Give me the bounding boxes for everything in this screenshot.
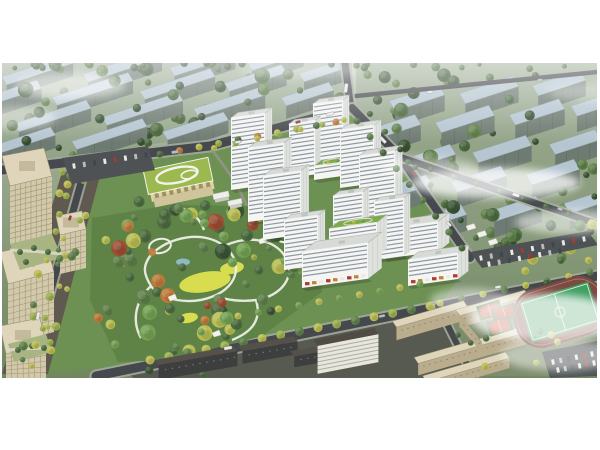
mist-cloud — [240, 62, 360, 78]
page-canvas — [0, 0, 600, 450]
aerial-rendering — [0, 0, 600, 450]
mist-cloud — [380, 157, 476, 177]
mist-cloud — [15, 73, 125, 99]
aerial-rendering-figure — [0, 0, 600, 450]
mist-cloud — [430, 288, 510, 312]
